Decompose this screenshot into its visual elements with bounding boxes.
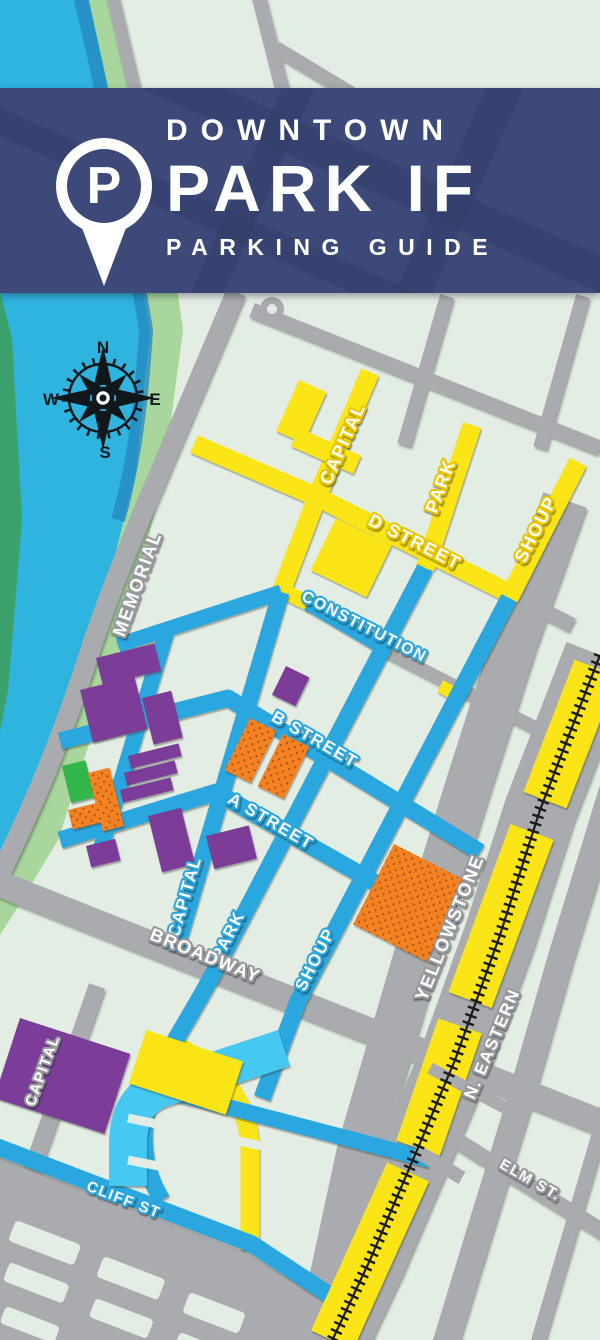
page-title: PARK IF (166, 150, 586, 226)
location-pin-tail (82, 228, 126, 286)
header-subtitle: PARKING GUIDE (166, 234, 586, 261)
compass-east-label: E (149, 390, 160, 409)
roundabout (260, 297, 284, 321)
header-banner: P DOWNTOWN PARK IF PARKING GUIDE (0, 88, 600, 293)
pin-parking-letter: P (67, 149, 141, 223)
compass-north-label: N (97, 338, 109, 357)
header-text-group: DOWNTOWN PARK IF PARKING GUIDE (166, 114, 586, 261)
parking-guide-map: N E S W CAPITAL PARK SHOUP D STREET CONS… (0, 0, 600, 1340)
header-kicker: DOWNTOWN (166, 114, 586, 148)
compass-west-label: W (43, 390, 60, 409)
compass-south-label: S (99, 443, 110, 462)
location-pin-circle: P (56, 138, 152, 234)
